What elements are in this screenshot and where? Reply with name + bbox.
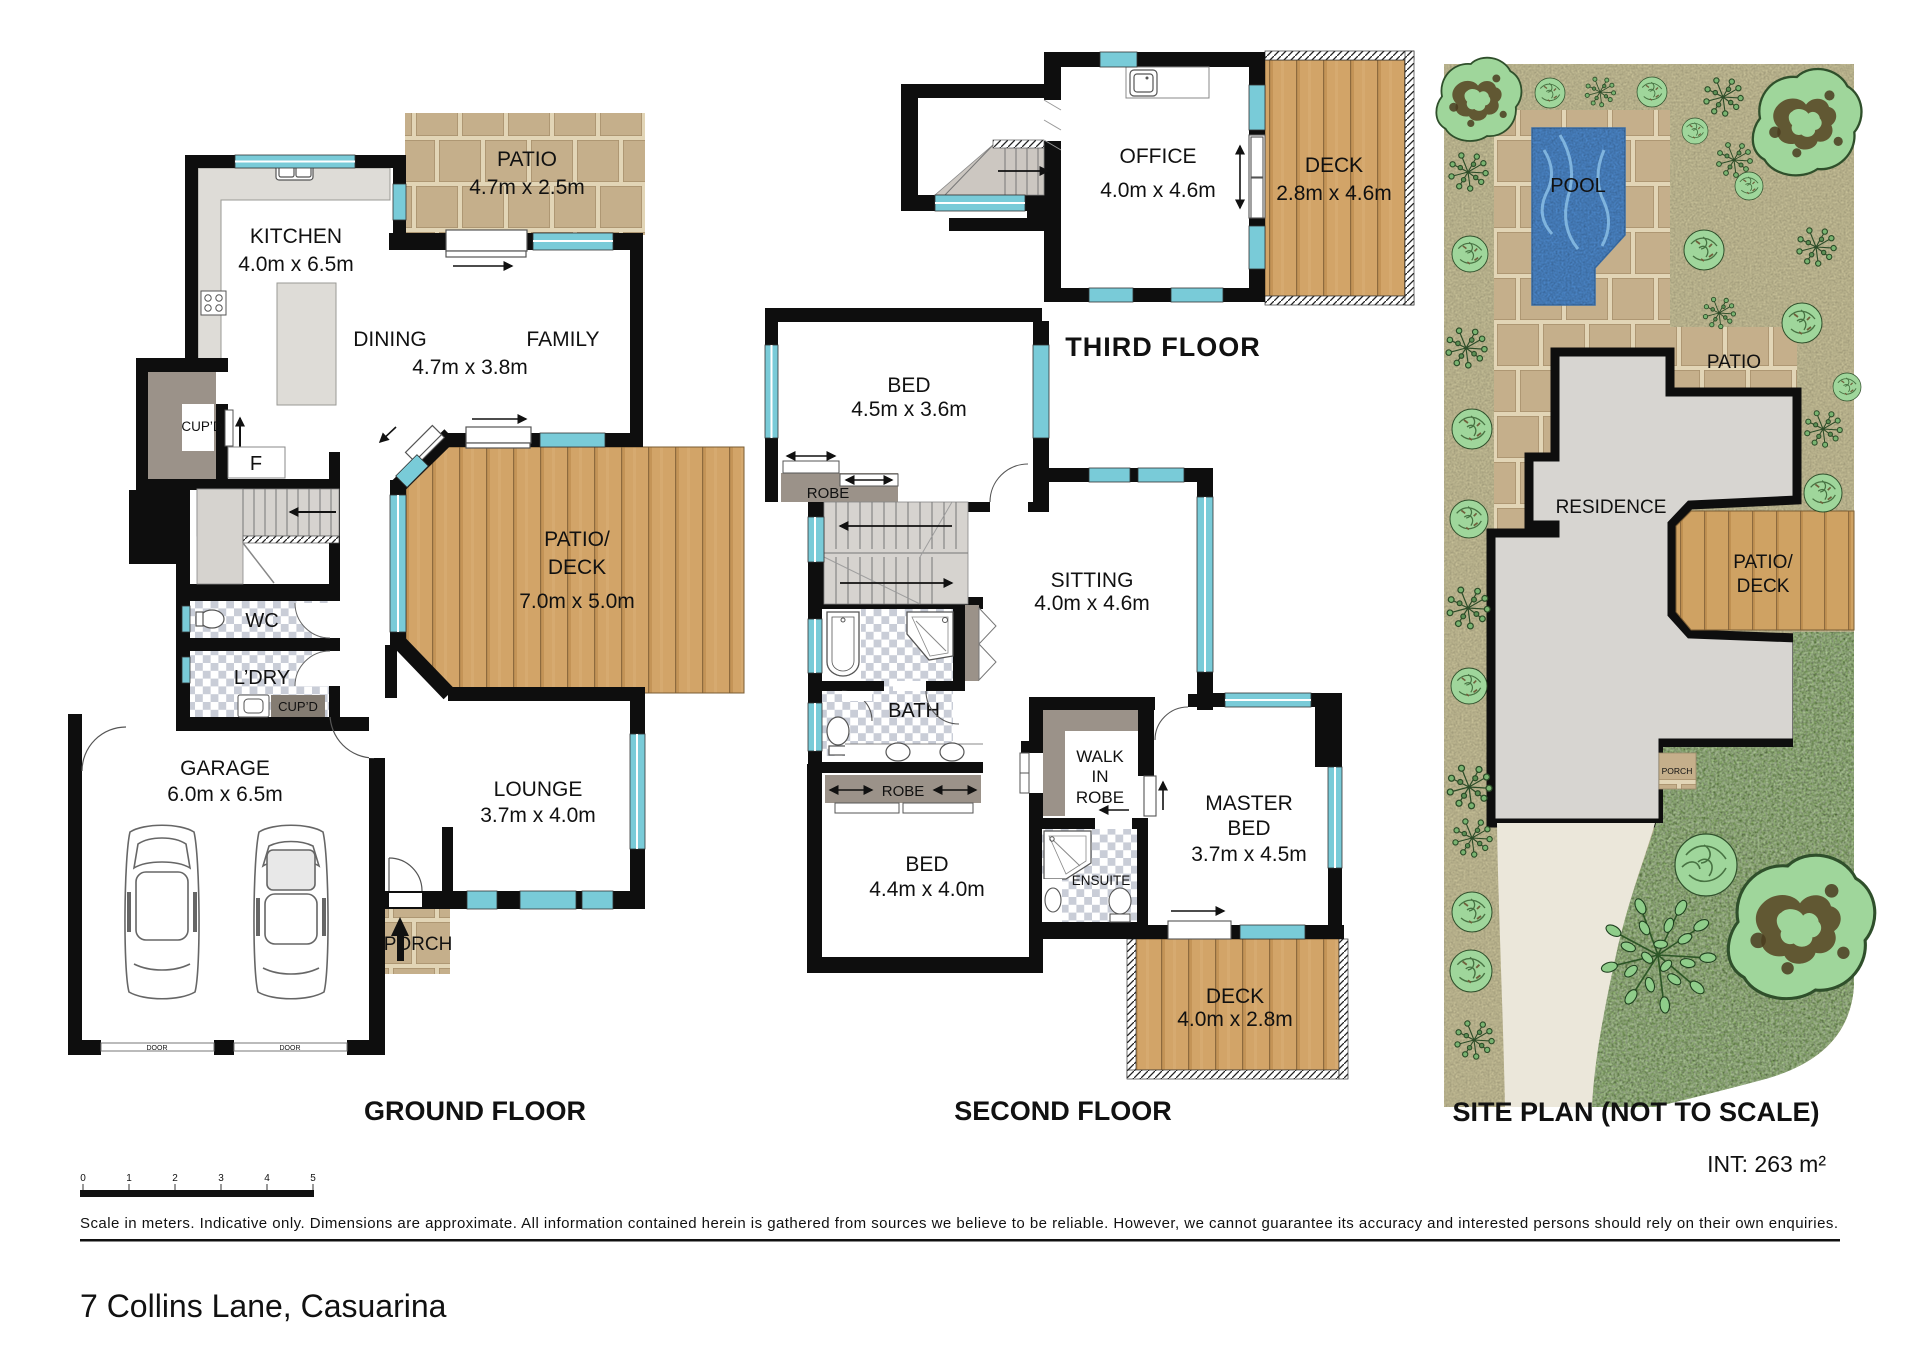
- svg-text:ROBE: ROBE: [807, 485, 850, 502]
- svg-text:ROBE: ROBE: [1076, 788, 1124, 807]
- svg-text:4.0m x 4.6m: 4.0m x 4.6m: [1100, 179, 1216, 202]
- svg-text:2: 2: [172, 1173, 178, 1184]
- svg-text:ENSUITE: ENSUITE: [1072, 873, 1131, 888]
- svg-text:CUP’D: CUP’D: [181, 419, 223, 434]
- svg-text:FAMILY: FAMILY: [526, 328, 599, 351]
- svg-text:2.8m x 4.6m: 2.8m x 4.6m: [1276, 182, 1392, 205]
- svg-text:4.0m x 4.6m: 4.0m x 4.6m: [1034, 592, 1150, 615]
- svg-text:7 Collins Lane, Casuarina: 7 Collins Lane, Casuarina: [80, 1288, 447, 1324]
- svg-text:INT: 263 m²: INT: 263 m²: [1707, 1151, 1826, 1177]
- svg-text:1: 1: [126, 1173, 132, 1184]
- svg-text:ROBE: ROBE: [882, 783, 925, 800]
- svg-text:RESIDENCE: RESIDENCE: [1556, 497, 1667, 518]
- svg-text:BED: BED: [905, 853, 948, 876]
- svg-text:PORCH: PORCH: [1662, 766, 1693, 776]
- svg-text:IN: IN: [1092, 767, 1109, 786]
- svg-text:7.0m x 5.0m: 7.0m x 5.0m: [519, 590, 635, 613]
- svg-text:KITCHEN: KITCHEN: [250, 225, 342, 248]
- svg-text:WC: WC: [245, 610, 278, 632]
- svg-text:GROUND FLOOR: GROUND FLOOR: [364, 1096, 586, 1126]
- svg-text:CUP’D: CUP’D: [278, 699, 318, 714]
- svg-text:GARAGE: GARAGE: [180, 757, 270, 780]
- svg-text:PATIO: PATIO: [1707, 352, 1761, 373]
- svg-text:3.7m x 4.0m: 3.7m x 4.0m: [480, 804, 596, 827]
- svg-text:WALK: WALK: [1076, 747, 1124, 766]
- svg-text:OFFICE: OFFICE: [1120, 145, 1197, 168]
- svg-text:4.5m x 3.6m: 4.5m x 3.6m: [851, 398, 967, 421]
- svg-text:4.4m x 4.0m: 4.4m x 4.0m: [869, 878, 985, 901]
- svg-text:BED: BED: [1227, 817, 1270, 840]
- svg-text:5: 5: [310, 1173, 316, 1184]
- svg-text:4.7m x 2.5m: 4.7m x 2.5m: [469, 176, 585, 199]
- svg-text:MASTER: MASTER: [1205, 792, 1293, 815]
- svg-text:6.0m x 6.5m: 6.0m x 6.5m: [167, 783, 283, 806]
- svg-text:DINING: DINING: [353, 328, 427, 351]
- svg-text:Scale in meters. Indicative on: Scale in meters. Indicative only. Dimens…: [80, 1215, 1838, 1232]
- svg-text:3: 3: [218, 1173, 224, 1184]
- svg-text:4.0m x 2.8m: 4.0m x 2.8m: [1177, 1008, 1293, 1031]
- svg-text:PATIO/: PATIO/: [544, 528, 610, 551]
- svg-text:DOOR: DOOR: [147, 1045, 168, 1052]
- svg-text:DECK: DECK: [1737, 576, 1790, 597]
- svg-text:BED: BED: [887, 374, 930, 397]
- svg-text:4.0m x 6.5m: 4.0m x 6.5m: [238, 253, 354, 276]
- svg-text:4: 4: [264, 1173, 270, 1184]
- svg-text:SITE PLAN (NOT TO SCALE): SITE PLAN (NOT TO SCALE): [1452, 1097, 1819, 1127]
- svg-text:POOL: POOL: [1550, 175, 1606, 197]
- svg-text:THIRD FLOOR: THIRD FLOOR: [1065, 332, 1260, 362]
- svg-text:L’DRY: L’DRY: [234, 667, 290, 689]
- svg-text:LOUNGE: LOUNGE: [494, 778, 583, 801]
- svg-text:SECOND FLOOR: SECOND FLOOR: [954, 1096, 1172, 1126]
- svg-text:3.7m x 4.5m: 3.7m x 4.5m: [1191, 843, 1307, 866]
- svg-text:DECK: DECK: [548, 556, 606, 579]
- svg-text:DECK: DECK: [1305, 154, 1363, 177]
- svg-text:PATIO: PATIO: [497, 148, 557, 171]
- svg-text:PORCH: PORCH: [384, 934, 453, 955]
- svg-text:DECK: DECK: [1206, 985, 1264, 1008]
- svg-text:0: 0: [80, 1173, 86, 1184]
- svg-text:4.7m x 3.8m: 4.7m x 3.8m: [412, 356, 528, 379]
- svg-text:F: F: [250, 453, 262, 475]
- svg-text:PATIO/: PATIO/: [1733, 552, 1793, 573]
- svg-text:DOOR: DOOR: [280, 1045, 301, 1052]
- svg-text:SITTING: SITTING: [1051, 569, 1134, 592]
